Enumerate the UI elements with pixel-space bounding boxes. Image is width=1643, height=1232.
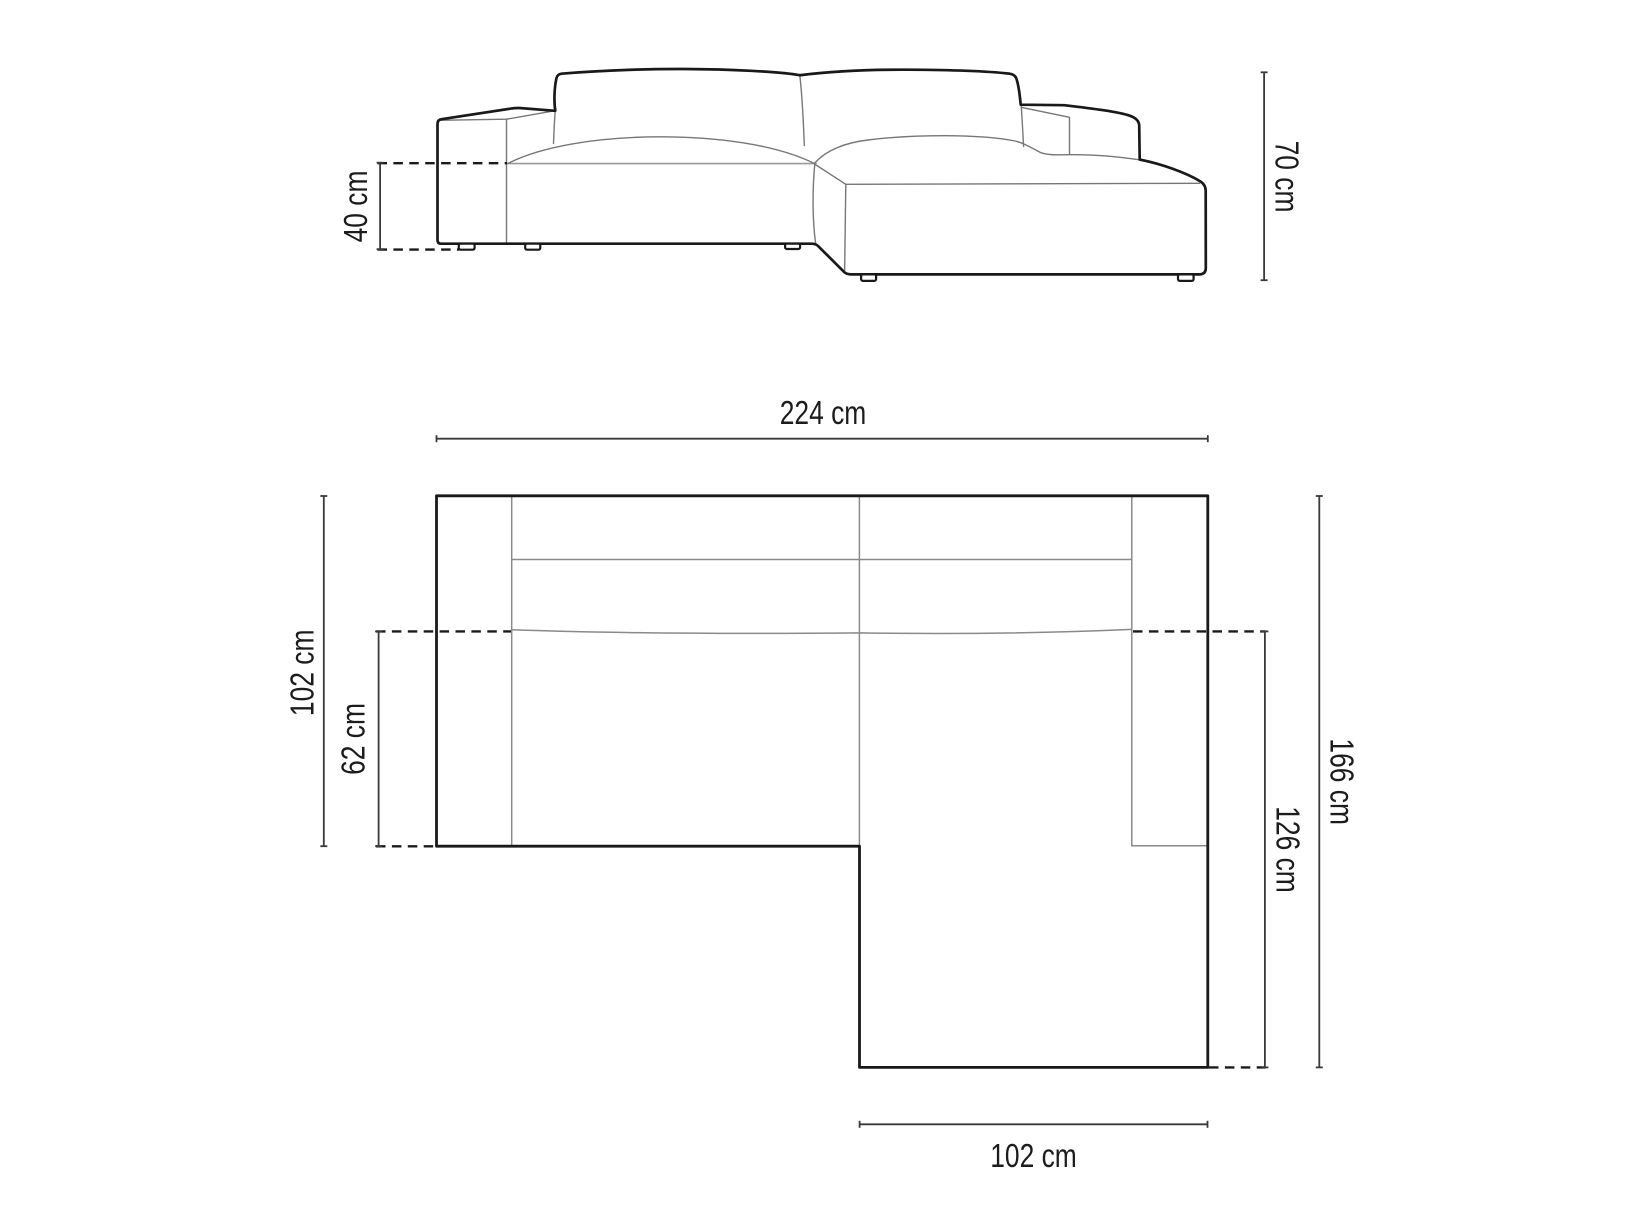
svg-text:126 cm: 126 cm — [1269, 806, 1305, 893]
svg-text:62 cm: 62 cm — [336, 703, 372, 775]
svg-text:102 cm: 102 cm — [285, 630, 321, 717]
svg-text:70 cm: 70 cm — [1268, 141, 1304, 213]
svg-text:40 cm: 40 cm — [338, 171, 374, 243]
svg-text:102 cm: 102 cm — [990, 1138, 1077, 1174]
svg-text:224 cm: 224 cm — [780, 395, 867, 431]
svg-text:166 cm: 166 cm — [1323, 738, 1359, 825]
